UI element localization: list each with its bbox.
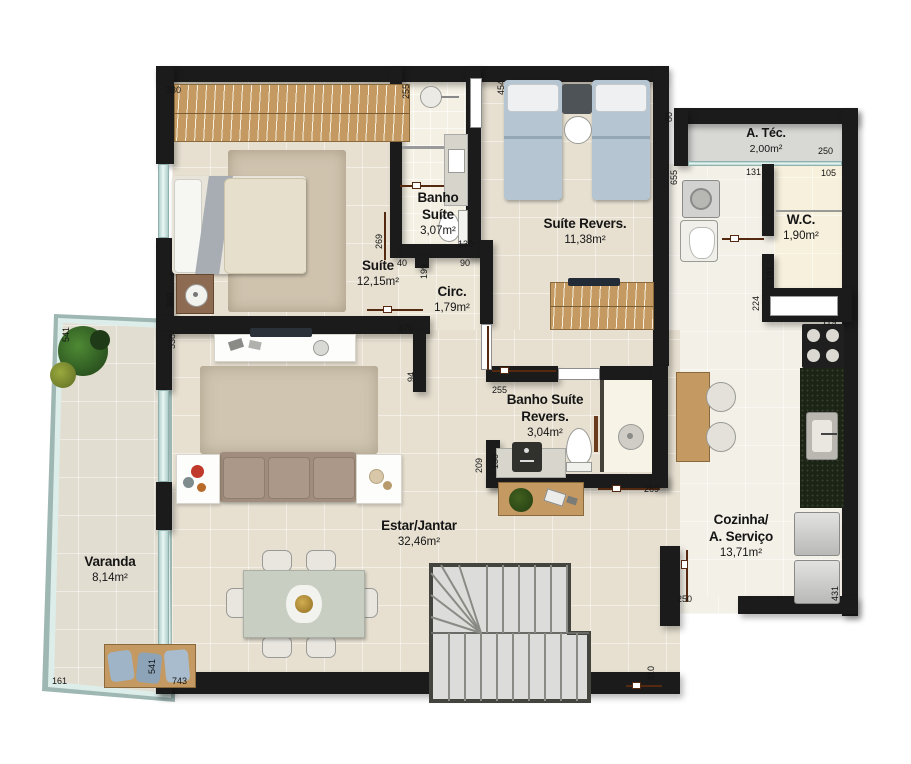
faucet-line [520, 460, 534, 462]
room-area: 13,71m² [686, 547, 796, 561]
wall [156, 672, 680, 694]
dim-label: 250 [818, 147, 833, 156]
bed-fold [592, 136, 650, 139]
dim-label: 330 [166, 86, 181, 95]
faucet-dot [524, 448, 529, 453]
room-name: Suíte [328, 258, 428, 275]
kitchen-chair [706, 422, 736, 452]
shower-drain-icon [627, 433, 633, 439]
tub-basin [689, 227, 715, 259]
floor-plan: 330 255 454 80 250 131 105 655 181 224 1… [0, 0, 911, 764]
dim-label: 80 [665, 112, 674, 122]
decor-object [248, 340, 261, 350]
dim-line [722, 238, 764, 240]
washbasin-icon [420, 86, 442, 108]
dim-label: 538 [168, 334, 177, 349]
appliance-washer [794, 512, 840, 556]
red-bowl-icon [191, 465, 204, 478]
room-area: 8,14m² [60, 572, 160, 586]
side-table-left [176, 454, 220, 504]
living-rug [200, 366, 378, 454]
kitchen-table [676, 372, 710, 462]
sliding-glass-door [158, 390, 169, 482]
dim-label: 743 [172, 677, 187, 686]
sliding-glass-door [158, 530, 169, 660]
dim-label: 224 [752, 296, 761, 311]
door-leaf [558, 368, 600, 380]
room-label-cozinha: Cozinha/ A. Serviço 13,71m² [686, 512, 796, 561]
basin-spout [441, 96, 459, 98]
sofa-cushion [313, 457, 355, 499]
plant-dark-icon [90, 330, 110, 350]
dim-marker [500, 367, 509, 374]
dim-line [400, 185, 444, 187]
single-bed-left [504, 80, 562, 200]
suite-wardrobe [174, 84, 410, 142]
washer-icon [682, 180, 720, 218]
dim-label: 130 [491, 454, 500, 469]
suite-revers-nightstand [562, 84, 592, 114]
wall [653, 66, 669, 366]
room-label-estar: Estar/Jantar 32,46m² [359, 518, 479, 550]
plant-small-icon [50, 362, 76, 388]
dim-label: 360 [166, 293, 175, 308]
room-name: Varanda [60, 554, 160, 571]
room-name: Suíte Revers. [525, 216, 645, 233]
dining-chair [306, 550, 336, 572]
kitchen-chair [706, 382, 736, 412]
bed-fold [504, 136, 562, 139]
room-label-atec: A. Téc. 2,00m² [716, 126, 816, 155]
dim-label: 181 [766, 266, 775, 281]
wall [660, 546, 680, 626]
decor-bowl [369, 469, 384, 484]
room-area: 3,04m² [485, 427, 605, 441]
room-name: Cozinha/ A. Serviço [686, 512, 796, 546]
dim-marker [612, 485, 621, 492]
kitchen-counter [800, 368, 844, 508]
centerpiece-icon [295, 595, 313, 613]
desk-plant-icon [509, 488, 533, 512]
dining-table [243, 570, 365, 638]
room-label-wc: W.C. 1,90m² [770, 212, 832, 244]
side-table-right [356, 454, 402, 504]
dim-line [487, 326, 489, 370]
room-label-suite-revers: Suíte Revers. 11,38m² [525, 216, 645, 248]
dim-label: 94 [407, 372, 416, 382]
wall [156, 482, 172, 530]
dim-label: 105 [821, 169, 836, 178]
tv-icon [568, 278, 620, 286]
dim-label: 131 [746, 168, 761, 177]
dim-line [384, 212, 386, 260]
sofa-cushion [268, 457, 310, 499]
room-area: 11,38m² [525, 234, 645, 248]
room-area: 1,90m² [770, 230, 832, 244]
room-name: A. Téc. [716, 126, 816, 142]
room-area: 3,07m² [397, 225, 479, 239]
dim-label: 541 [62, 327, 71, 342]
wall [156, 66, 174, 164]
room-label-circ: Circ. 1,79m² [412, 284, 492, 316]
laundry-tub-icon [680, 220, 718, 262]
dim-label: 119 [822, 318, 836, 327]
tv-console [214, 334, 356, 362]
tv-icon [250, 328, 312, 337]
room-name: W.C. [770, 212, 832, 229]
dim-marker [383, 306, 392, 313]
dim-marker [412, 182, 421, 189]
dining-chair [306, 636, 336, 658]
dim-label: 209 [475, 458, 484, 473]
dim-label: 431 [831, 586, 840, 601]
room-label-varanda: Varanda 8,14m² [60, 554, 160, 586]
bed-duvet [224, 178, 306, 274]
room-area: 32,46m² [359, 536, 479, 550]
bed-pillow [595, 84, 647, 112]
wall [674, 108, 688, 166]
wall [674, 108, 858, 124]
room-area: 2,00m² [716, 143, 816, 156]
sink-icon [448, 149, 465, 173]
suite-nightstand [176, 274, 214, 314]
dining-chair [262, 550, 292, 572]
dim-label: 541 [148, 659, 157, 674]
wall [156, 66, 664, 82]
room-name: Estar/Jantar [359, 518, 479, 535]
faucet-line [821, 433, 837, 435]
wc-shelf [770, 296, 838, 316]
window [158, 164, 169, 238]
dim-label: 130 [458, 240, 473, 249]
dim-marker [632, 682, 641, 689]
room-label-banho-revers: Banho Suíte Revers. 3,04m² [485, 392, 605, 441]
wall [486, 366, 558, 382]
wall [652, 366, 668, 488]
dim-label: 250 [677, 595, 692, 604]
sofa-cushion [223, 457, 265, 499]
room-name: Banho Suíte [397, 190, 479, 224]
orange-bowl-icon [197, 483, 206, 492]
suite-revers-wardrobe [550, 282, 654, 330]
sink-bowl [812, 420, 832, 452]
stool-icon [564, 116, 592, 144]
dim-label: 655 [670, 170, 679, 185]
wall [842, 108, 858, 616]
wall [413, 330, 426, 392]
dim-label: 90 [460, 259, 470, 268]
lamp-dot-icon [193, 292, 198, 297]
single-bed-right [592, 80, 650, 200]
toilet-tank [566, 462, 592, 472]
decor-bowl [313, 340, 329, 356]
laptop-icon [543, 488, 566, 507]
room-name: Circ. [412, 284, 492, 301]
mouse-icon [566, 496, 578, 506]
bench-cushion [107, 649, 135, 682]
washer-drum [690, 188, 712, 210]
dining-chair [262, 636, 292, 658]
staircase [429, 563, 591, 703]
gray-bowl-icon [183, 477, 194, 488]
dim-marker [681, 560, 688, 569]
room-name: Banho Suíte Revers. [485, 392, 605, 426]
desk [498, 482, 584, 516]
decor-bowl [383, 481, 392, 490]
dim-label: 161 [52, 677, 67, 686]
room-area: 1,79m² [412, 302, 492, 316]
room-label-banho-suite: Banho Suíte 3,07m² [397, 190, 479, 239]
dim-label: 269 [644, 485, 659, 494]
dark-sink-icon [512, 442, 542, 472]
shower-stall [600, 380, 652, 472]
suite-bed [172, 176, 306, 274]
sofa [218, 452, 358, 502]
dim-label: 454 [497, 80, 506, 95]
dim-label: 255 [402, 84, 411, 99]
dim-label: 269 [375, 234, 384, 249]
decor-object [228, 338, 244, 351]
door-leaf [470, 78, 482, 128]
kitchen-sink-icon [806, 412, 838, 460]
bed-pillow [507, 84, 559, 112]
dim-label: 310 [647, 666, 656, 681]
dim-marker [730, 235, 739, 242]
dim-label: 370 [398, 324, 413, 333]
stove-icon [802, 324, 844, 368]
